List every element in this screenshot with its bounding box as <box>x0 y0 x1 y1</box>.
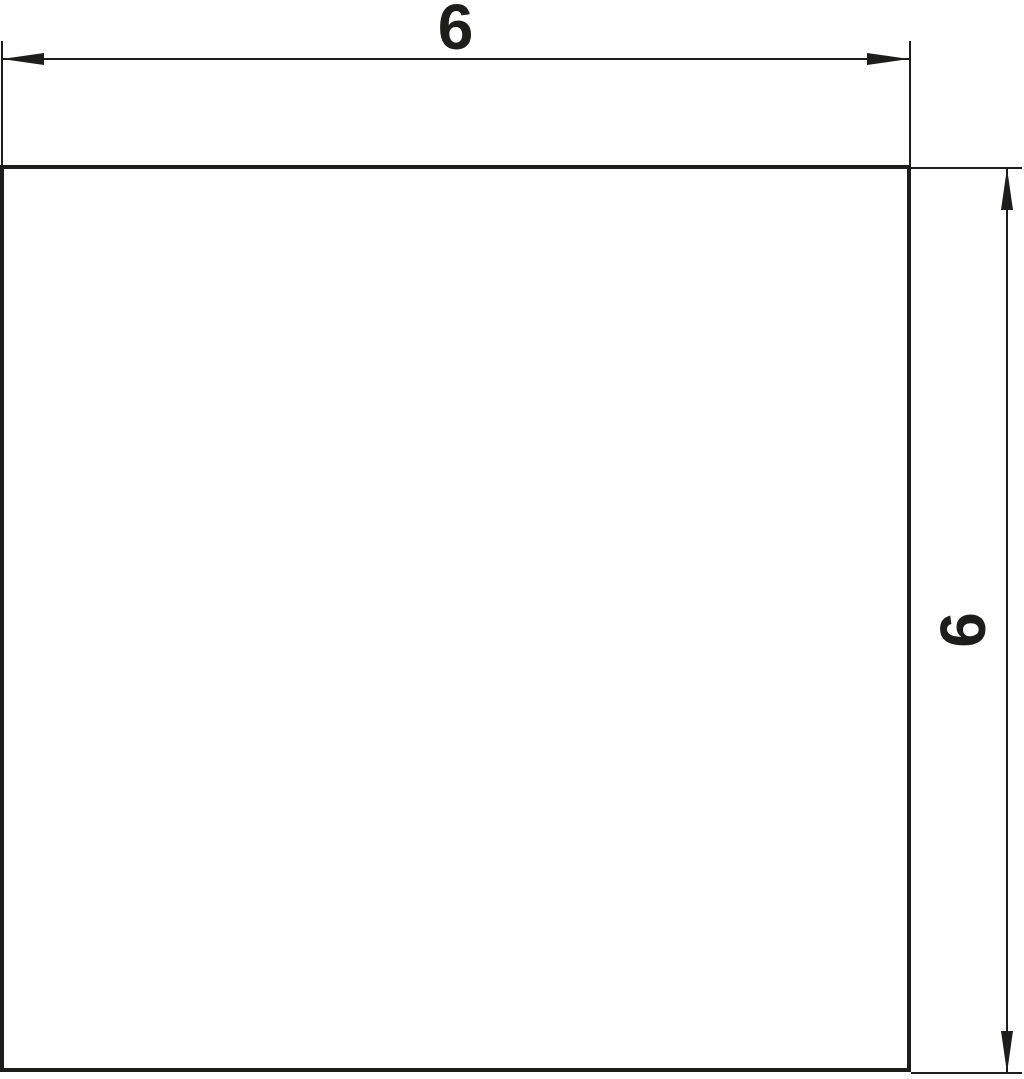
height-dimension-label: 6 <box>931 612 995 648</box>
extension-line-right <box>909 41 911 167</box>
arrowhead-up-icon <box>1001 168 1013 210</box>
square-shape <box>0 165 911 1072</box>
width-dimension-label: 6 <box>0 0 911 59</box>
arrowhead-down-icon <box>1001 1031 1013 1073</box>
vertical-dimension-line <box>1006 168 1008 1073</box>
technical-drawing-canvas: 6 6 <box>0 0 1024 1079</box>
